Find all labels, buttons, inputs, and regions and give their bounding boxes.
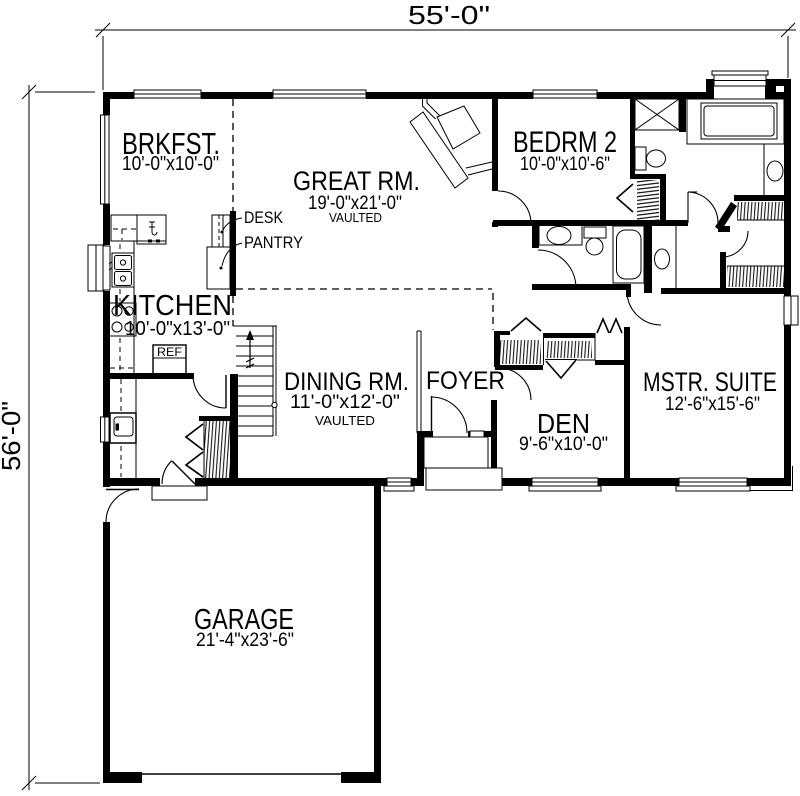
svg-text:GREAT RM.: GREAT RM. xyxy=(293,166,420,196)
svg-text:21'-4"x23'-6": 21'-4"x23'-6" xyxy=(196,630,294,651)
svg-text:PANTRY: PANTRY xyxy=(244,233,303,252)
svg-text:56'-0": 56'-0" xyxy=(0,401,26,471)
svg-text:10'-0"x13'-0": 10'-0"x13'-0" xyxy=(125,318,230,340)
svg-text:55'-0": 55'-0" xyxy=(408,0,490,30)
svg-text:11'-0"x12'-0": 11'-0"x12'-0" xyxy=(290,392,400,413)
svg-text:10'-0"x10'-6": 10'-0"x10'-6" xyxy=(520,154,610,175)
svg-text:VAULTED: VAULTED xyxy=(315,413,375,428)
svg-text:MSTR. SUITE: MSTR. SUITE xyxy=(643,367,777,397)
svg-text:DESK: DESK xyxy=(244,208,284,227)
svg-text:10'-0"x10'-0": 10'-0"x10'-0" xyxy=(122,153,219,175)
svg-text:REF: REF xyxy=(157,345,182,359)
svg-text:9'-6"x10'-0": 9'-6"x10'-0" xyxy=(519,434,608,455)
svg-text:FOYER: FOYER xyxy=(426,367,505,395)
svg-text:VAULTED: VAULTED xyxy=(329,210,382,225)
svg-text:12'-6"x15'-6": 12'-6"x15'-6" xyxy=(665,394,760,415)
